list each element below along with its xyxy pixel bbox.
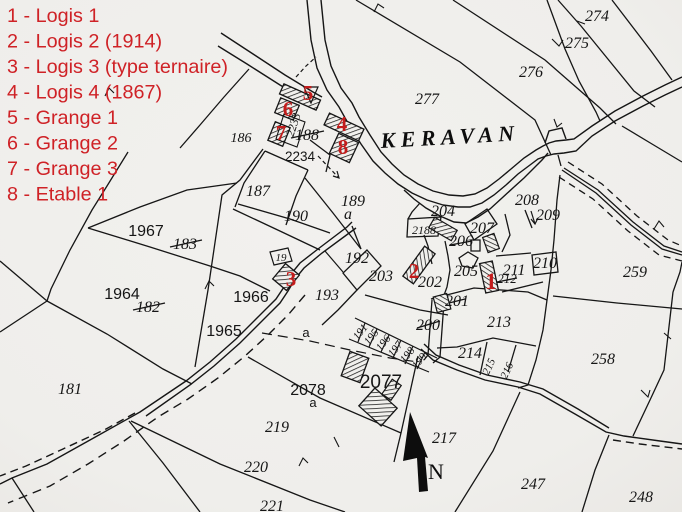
svg-text:3: 3 [286, 267, 297, 291]
svg-text:220: 220 [244, 459, 268, 476]
svg-text:258: 258 [591, 351, 615, 368]
svg-text:213: 213 [487, 314, 511, 331]
svg-text:248: 248 [629, 489, 653, 506]
svg-text:1: 1 [485, 269, 497, 294]
svg-text:205: 205 [454, 263, 478, 280]
svg-text:193: 193 [315, 287, 339, 304]
svg-text:7 - Grange 3: 7 - Grange 3 [7, 158, 118, 180]
svg-text:207: 207 [470, 220, 495, 237]
svg-text:4 - Logis 4 (1867): 4 - Logis 4 (1867) [7, 82, 162, 104]
svg-text:1965: 1965 [206, 323, 242, 340]
svg-text:2 - Logis 2 (1914): 2 - Logis 2 (1914) [7, 31, 162, 53]
svg-text:186: 186 [231, 131, 252, 146]
svg-text:2078: 2078 [290, 382, 326, 399]
svg-text:192: 192 [345, 250, 369, 267]
svg-text:8 - Etable 1: 8 - Etable 1 [7, 184, 108, 206]
svg-text:N: N [428, 459, 444, 484]
svg-text:a: a [344, 206, 352, 223]
svg-text:277: 277 [415, 91, 440, 108]
svg-text:1966: 1966 [233, 289, 269, 306]
svg-text:a: a [309, 395, 317, 410]
svg-text:203: 203 [369, 268, 393, 285]
svg-text:187: 187 [246, 183, 271, 200]
svg-text:183: 183 [173, 236, 197, 253]
svg-text:209: 209 [536, 207, 560, 224]
svg-text:19: 19 [276, 252, 288, 264]
svg-text:5: 5 [303, 81, 314, 105]
svg-text:200: 200 [416, 317, 440, 334]
svg-text:1964: 1964 [104, 286, 140, 303]
svg-text:214: 214 [458, 345, 482, 362]
svg-text:1967: 1967 [128, 223, 164, 240]
svg-text:181: 181 [58, 381, 82, 398]
svg-text:217: 217 [432, 430, 457, 447]
svg-text:259: 259 [623, 264, 647, 281]
svg-text:4: 4 [337, 112, 348, 136]
svg-text:2077: 2077 [360, 372, 402, 393]
svg-text:5 - Grange 1: 5 - Grange 1 [7, 107, 118, 129]
svg-text:190: 190 [284, 208, 308, 225]
svg-text:204: 204 [431, 203, 455, 220]
svg-text:221: 221 [260, 498, 284, 512]
svg-text:219: 219 [265, 419, 289, 436]
svg-text:275: 275 [565, 35, 589, 52]
svg-text:8: 8 [338, 135, 349, 159]
svg-text:274: 274 [585, 8, 609, 25]
svg-text:a: a [302, 325, 310, 340]
svg-text:3 - Logis 3 (type ternaire): 3 - Logis 3 (type ternaire) [7, 56, 228, 78]
svg-text:6 - Grange 2: 6 - Grange 2 [7, 133, 118, 155]
svg-text:247: 247 [521, 476, 546, 493]
svg-text:276: 276 [519, 64, 543, 81]
svg-text:2188: 2188 [412, 223, 436, 237]
svg-text:202: 202 [418, 274, 442, 291]
svg-text:1 - Logis 1: 1 - Logis 1 [7, 5, 99, 27]
svg-text:210: 210 [533, 255, 557, 272]
svg-text:2234: 2234 [285, 149, 316, 164]
